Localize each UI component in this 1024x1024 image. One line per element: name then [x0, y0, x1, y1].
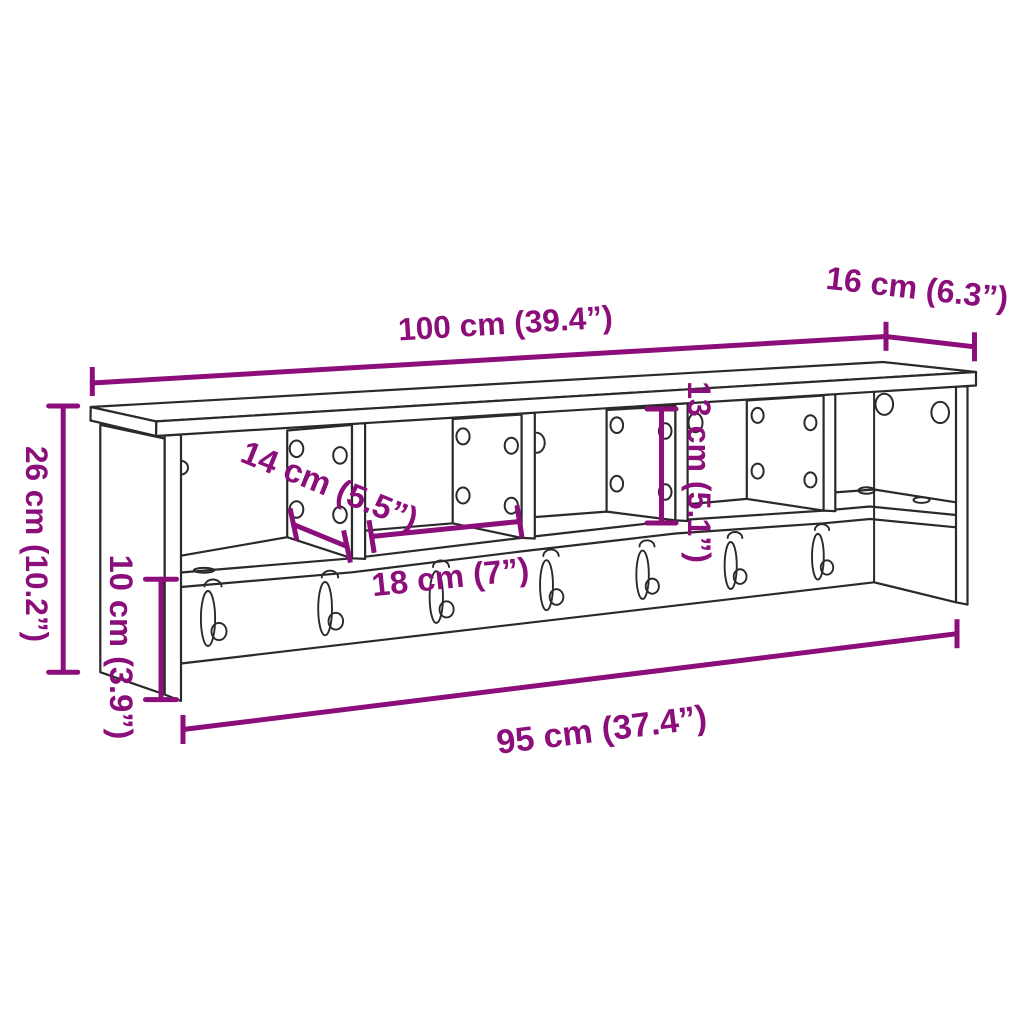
svg-text:13 cm (5.1”): 13 cm (5.1”) [681, 381, 717, 563]
svg-text:10 cm (3.9”): 10 cm (3.9”) [103, 555, 140, 740]
svg-text:26 cm (10.2”): 26 cm (10.2”) [19, 446, 55, 642]
